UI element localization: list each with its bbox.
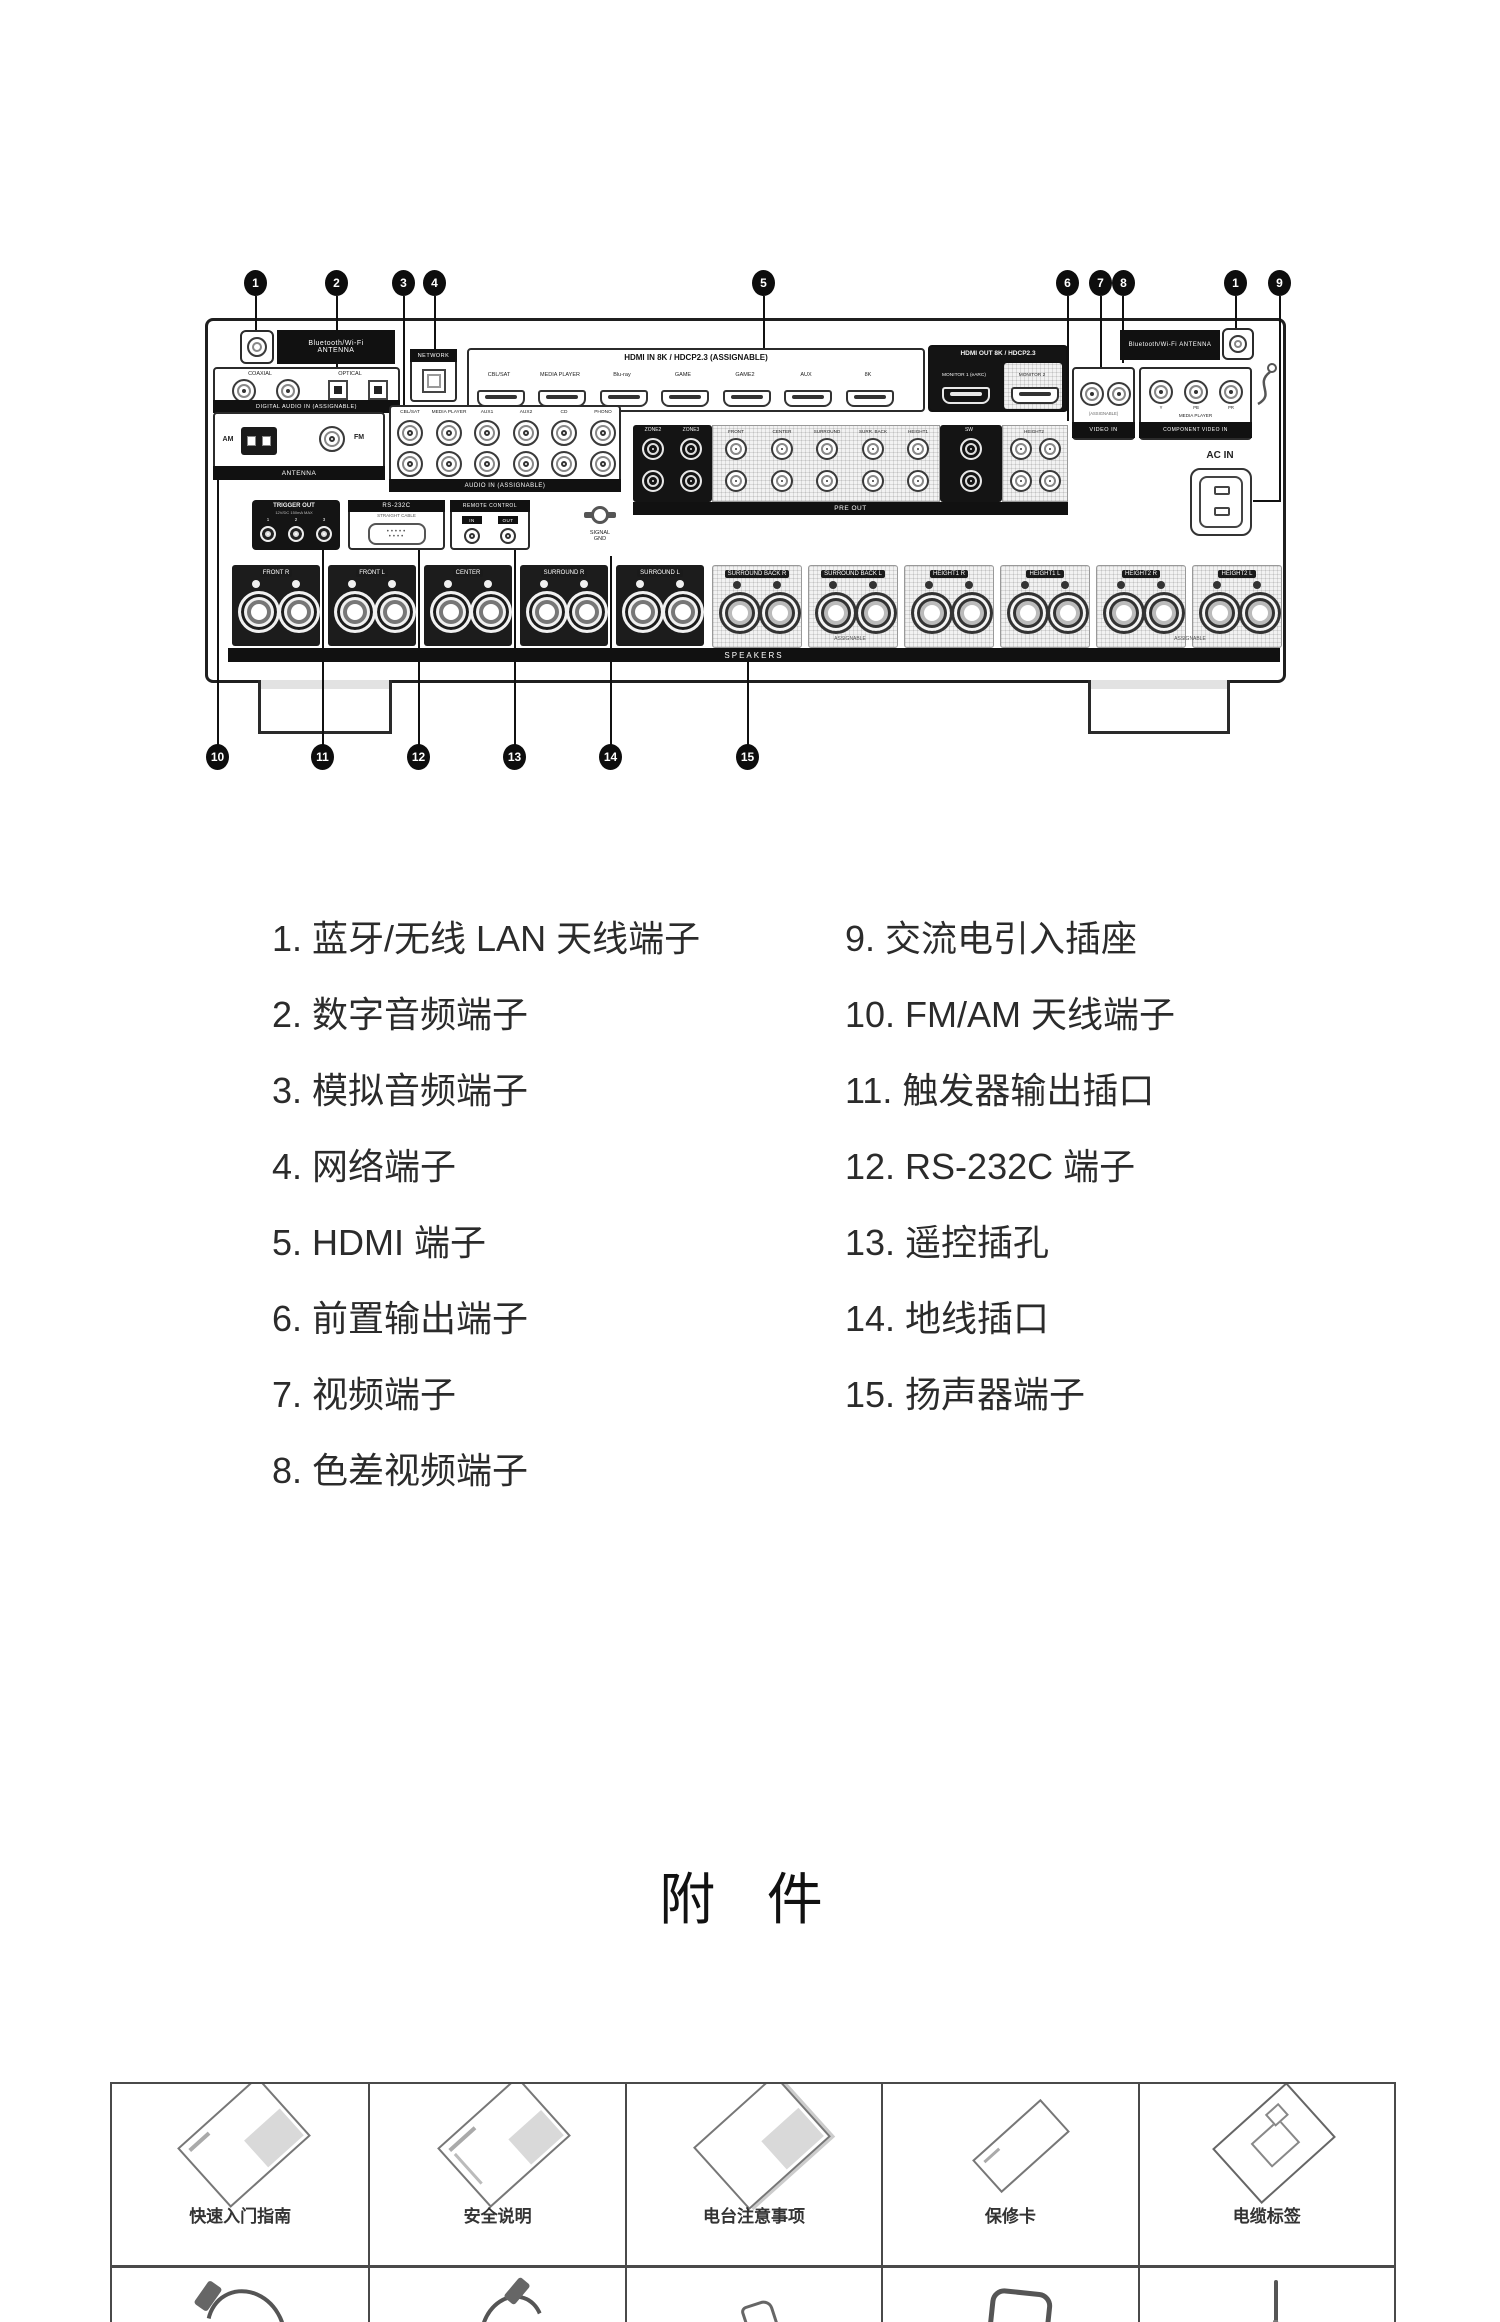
hdmi-port (846, 390, 894, 407)
audio-col-label: MEDIA PLAYER (430, 410, 468, 415)
remote-out-chip: OUT (498, 516, 518, 524)
binding-post (662, 591, 704, 633)
hdmi-port (661, 390, 709, 407)
document-icon (437, 2084, 571, 2208)
audio-strip: AUDIO IN (ASSIGNABLE) (389, 479, 621, 492)
preout-jack (680, 470, 702, 492)
remote-header-text: REMOTE CONTROL (463, 503, 517, 509)
accessory-label: 电缆标签 (1140, 2202, 1394, 2227)
ac-inlet (1190, 468, 1252, 536)
antenna-squiggle-icon (1252, 358, 1282, 408)
accessory-plug (625, 2265, 881, 2322)
hdmi-input-label: MEDIA PLAYER (532, 372, 588, 378)
am-terminal (241, 427, 277, 455)
binding-post (1199, 592, 1241, 634)
component-col-label: PB (1184, 406, 1208, 411)
callout-6: 6 (1056, 270, 1079, 296)
leader-line (403, 296, 405, 405)
preout-jack (1039, 470, 1061, 492)
rca-jack (590, 420, 616, 446)
accessory-loop-antenna (881, 2265, 1137, 2322)
legend-item-13: 13. 遥控插孔 (845, 1214, 1049, 1266)
binding-post (334, 591, 376, 633)
legend-item-5: 5. HDMI 端子 (272, 1214, 486, 1266)
accessories-row-2 (112, 2265, 1394, 2322)
antenna-jack (1229, 335, 1247, 353)
media-player-label: MEDIA PLAYER (1141, 413, 1250, 418)
assignable-label: ASSIGNABLE (760, 637, 940, 643)
leader-line (514, 548, 516, 745)
preout-jack (907, 438, 929, 460)
speaker-channel-label: SURROUND BACK L (821, 570, 885, 578)
component-col-label: Y (1149, 406, 1173, 411)
trigger-header: TRIGGER OUT (252, 503, 336, 510)
callout-5: 5 (752, 270, 775, 296)
bt-antenna-text: ANTENNA (318, 347, 355, 354)
preout-sw-box: SW (940, 425, 1002, 502)
trigger-jack (288, 526, 304, 542)
legend-item-1: 1. 蓝牙/无线 LAN 天线端子 (272, 910, 700, 962)
speakers-strip-text: SPEAKERS (724, 651, 783, 660)
speakers-strip: SPEAKERS (228, 648, 1280, 662)
legend-item-14: 14. 地线插口 (845, 1290, 1049, 1342)
binding-post (622, 591, 664, 633)
audio-col-label: PHONO (584, 410, 622, 415)
preout-jack (1010, 470, 1032, 492)
callout-1b: 1 (1224, 270, 1247, 296)
hdmi-input-label: GAME (655, 372, 711, 378)
remote-header: REMOTE CONTROL (450, 500, 530, 512)
binding-post (470, 591, 512, 633)
binding-post (1239, 592, 1281, 634)
legend-item-9: 9. 交流电引入插座 (845, 910, 1137, 962)
preout-col-label: SURROUND (805, 429, 849, 434)
accessory-label: 保修卡 (883, 2202, 1137, 2227)
panel-foot-left (258, 680, 392, 734)
fm-label: FM (349, 434, 369, 442)
preout-jack (960, 438, 982, 460)
component-jack (1149, 380, 1173, 404)
hdmi-input-label: CBL/SAT (471, 372, 527, 378)
speaker-channel-label: SURROUND BACK R (725, 570, 790, 578)
hdmi-out-box: HDMI OUT 8K / HDCP2.3 MONITOR 1 (eARC) M… (928, 345, 1068, 412)
speaker-cell: SURROUND BACK R (712, 565, 802, 648)
accessory-label: 电台注意事项 (627, 2202, 881, 2227)
legend-item-12: 12. RS-232C 端子 (845, 1138, 1135, 1190)
callout-1: 1 (244, 270, 267, 296)
rca-jack (590, 451, 616, 477)
rca-jack (436, 420, 462, 446)
leader-line (217, 480, 219, 745)
accessory-cable (368, 2265, 624, 2322)
page-canvas: 1 2 3 4 5 6 7 8 1 9 10 11 12 13 14 15 Bl… (0, 0, 1500, 2322)
preout-jack (907, 470, 929, 492)
preout-strip-text: PRE OUT (834, 505, 866, 512)
hdmi-in-header-text: HDMI IN 8K / HDCP2.3 (ASSIGNABLE) (624, 353, 768, 362)
height2-label: HEIGHT2 (1003, 429, 1065, 434)
preout-zones-box: ZONE2 ZONE3 (633, 425, 712, 502)
component-col-label: PR (1219, 406, 1243, 411)
speaker-cell: HEIGHT2 R (1096, 565, 1186, 648)
hdmi-port (723, 390, 771, 407)
network-header-text: NETWORK (418, 353, 450, 359)
binding-post (815, 592, 857, 634)
audio-col-label: CD (545, 410, 583, 415)
signal-gnd-label: SIGNAL GND (580, 530, 620, 542)
binding-post (430, 591, 472, 633)
trigger-jack-label: 2 (288, 518, 304, 523)
preout-jack (642, 470, 664, 492)
preout-main-box: FRONT CENTER SURROUND SURR. BACK HEIGHT1 (712, 425, 940, 502)
callout-10: 10 (206, 744, 229, 770)
preout-jack (725, 438, 747, 460)
trigger-jack-label: 3 (316, 518, 332, 523)
speaker-cell: HEIGHT1 R (904, 565, 994, 648)
preout-jack (960, 470, 982, 492)
preout-jack (862, 438, 884, 460)
component-jack (1184, 380, 1208, 404)
speaker-channel-label: CENTER (453, 569, 484, 577)
speaker-channel-label: HEIGHT1 R (930, 570, 968, 578)
preout-height2-box: HEIGHT2 (1002, 425, 1068, 502)
legend-item-11: 11. 触发器输出插口 (845, 1062, 1154, 1114)
trigger-sub: 12V/DC 150mA MAX (252, 511, 336, 515)
hdmi-out-header: HDMI OUT 8K / HDCP2.3 (930, 350, 1066, 357)
audio-strip-text: AUDIO IN (ASSIGNABLE) (465, 483, 546, 489)
component-jack (1219, 380, 1243, 404)
hdmi-out-port-monitor2 (1011, 387, 1059, 404)
callout-15: 15 (736, 744, 759, 770)
bt-antenna-connector-left (240, 330, 274, 364)
preout-col-label: SURR. BACK (851, 429, 895, 434)
leader-line (1235, 296, 1237, 331)
leader-line (763, 296, 765, 349)
remote-control-box: REMOTE CONTROL IN OUT (450, 500, 530, 550)
bt-antenna-text: Bluetooth/Wi-Fi (1129, 342, 1178, 348)
rca-jack (551, 451, 577, 477)
callout-11: 11 (311, 744, 334, 770)
component-strip-text: COMPONENT VIDEO IN (1163, 427, 1228, 433)
leader-line (434, 296, 436, 350)
binding-post (566, 591, 608, 633)
document-icon (693, 2084, 831, 2210)
speaker-cell: FRONT L (328, 565, 416, 646)
leader-line (747, 652, 749, 745)
preout-jack (725, 470, 747, 492)
accessory-label: 安全说明 (370, 2202, 624, 2227)
speaker-channel-label: HEIGHT2 L (1218, 570, 1255, 578)
speaker-cell: SURROUND L (616, 565, 704, 646)
hdmi-out-header-text: HDMI OUT 8K / HDCP2.3 (960, 350, 1035, 357)
bt-antenna-text: ANTENNA (1179, 342, 1211, 348)
callout-7: 7 (1089, 270, 1112, 296)
binding-post (1143, 592, 1185, 634)
preout-jack (642, 438, 664, 460)
callout-13: 13 (503, 744, 526, 770)
db9-connector: ••••• •••• (368, 523, 426, 545)
speaker-cell: FRONT R (232, 565, 320, 646)
accessory-cable-labels: 电缆标签 (1138, 2084, 1394, 2265)
callout-2: 2 (325, 270, 348, 296)
bt-antenna-label-right: Bluetooth/Wi-Fi ANTENNA (1120, 330, 1220, 360)
optical-jack (368, 380, 388, 400)
video-assignable: (ASSIGNABLE) (1074, 412, 1133, 417)
hdmi-input-label: GAME2 (717, 372, 773, 378)
hdmi-input-label: AUX (778, 372, 834, 378)
rca-jack (513, 451, 539, 477)
rca-jack (436, 451, 462, 477)
bt-antenna-label-left: Bluetooth/Wi-Fi ANTENNA (277, 330, 395, 364)
remote-in-chip: IN (462, 516, 482, 524)
antenna-strip: ANTENNA (213, 466, 385, 480)
rca-jack (513, 420, 539, 446)
audio-col-label: AUX2 (507, 410, 545, 415)
callout-3: 3 (392, 270, 415, 296)
legend-item-6: 6. 前置输出端子 (272, 1290, 528, 1342)
rs232c-sub: STRAIGHT CABLE (350, 514, 443, 519)
video-box: (ASSIGNABLE) VIDEO IN (1072, 367, 1135, 440)
signal-gnd-text: GND (594, 536, 606, 542)
leader-line (418, 548, 420, 745)
leader-line (1253, 500, 1281, 502)
accessories-table: 快速入门指南 安全说明 电台注意事项 保修卡 (110, 2082, 1396, 2322)
audio-col-label: AUX1 (468, 410, 506, 415)
binding-post (855, 592, 897, 634)
preout-jack (862, 470, 884, 492)
antenna-jack (247, 337, 267, 357)
binding-post (759, 592, 801, 634)
coaxial-label: COAXIAL (225, 371, 295, 377)
callout-9: 9 (1268, 270, 1291, 296)
binding-post (1047, 592, 1089, 634)
speaker-cell: CENTER (424, 565, 512, 646)
monitor1-label: MONITOR 1 (eARC) (936, 373, 992, 378)
accessories-row-1: 快速入门指南 安全说明 电台注意事项 保修卡 (112, 2084, 1394, 2265)
leader-line (1100, 296, 1102, 368)
preout-jack (680, 438, 702, 460)
callout-8: 8 (1112, 270, 1135, 296)
preout-col-label: HEIGHT1 (896, 429, 940, 434)
speaker-cell: SURROUND R (520, 565, 608, 646)
legend-item-2: 2. 数字音频端子 (272, 986, 528, 1038)
remote-in-text: IN (469, 518, 475, 523)
accessory-label: 快速入门指南 (112, 2202, 368, 2227)
callout-12: 12 (407, 744, 430, 770)
panel-foot-right (1088, 680, 1230, 734)
accessory-warranty: 保修卡 (881, 2084, 1137, 2265)
trigger-jack-label: 1 (260, 518, 276, 523)
trigger-jack (260, 526, 276, 542)
signal-gnd-terminal (584, 505, 616, 525)
hdmi-out-zone: MONITOR 2 (1004, 363, 1062, 409)
binding-post (1103, 592, 1145, 634)
speaker-channel-label: FRONT R (260, 569, 293, 577)
ethernet-port (422, 369, 446, 393)
hdmi-port (784, 390, 832, 407)
component-video-box: Y PB PR MEDIA PLAYER COMPONENT VIDEO IN (1139, 367, 1252, 440)
hdmi-input-label: 8K (840, 372, 896, 378)
legend-item-3: 3. 模拟音频端子 (272, 1062, 528, 1114)
callout-4: 4 (423, 270, 446, 296)
audio-col-label: CBL/SAT (391, 410, 429, 415)
video-strip-text: VIDEO IN (1089, 427, 1117, 433)
rca-jack (397, 451, 423, 477)
network-box: NETWORK (410, 349, 457, 402)
binding-post (278, 591, 320, 633)
preout-jack (771, 438, 793, 460)
rs232c-box: RS-232C STRAIGHT CABLE ••••• •••• (348, 500, 445, 550)
binding-post (719, 592, 761, 634)
label-sheet-icon (1212, 2084, 1336, 2204)
antenna-strip-text: ANTENNA (282, 470, 317, 477)
rca-jack (397, 420, 423, 446)
preout-col-label: FRONT (714, 429, 758, 434)
binding-post (911, 592, 953, 634)
remote-out-text: OUT (503, 518, 514, 523)
video-jack (1107, 382, 1131, 406)
rs232c-header-text: RS-232C (382, 503, 410, 509)
component-strip: COMPONENT VIDEO IN (1139, 422, 1252, 438)
binding-post (374, 591, 416, 633)
rs232c-header: RS-232C (348, 500, 445, 512)
preout-jack (816, 438, 838, 460)
trigger-jack (316, 526, 332, 542)
legend-item-4: 4. 网络端子 (272, 1138, 456, 1190)
digital-audio-strip-text: DIGITAL AUDIO IN (ASSIGNABLE) (256, 404, 357, 410)
optical-label: OPTICAL (320, 371, 380, 377)
accessory-power-cord (112, 2265, 368, 2322)
ac-in-label: AC IN (1185, 450, 1255, 461)
preout-jack (1039, 438, 1061, 460)
speaker-channel-label: SURROUND L (637, 569, 683, 577)
hdmi-in-box: HDMI IN 8K / HDCP2.3 (ASSIGNABLE) CBL/SA… (467, 348, 925, 412)
bt-antenna-connector-right (1222, 328, 1254, 360)
optical-jack (328, 380, 348, 400)
accessory-safety: 安全说明 (368, 2084, 624, 2265)
legend-item-8: 8. 色差视频端子 (272, 1442, 528, 1494)
accessories-title: 附 件 (0, 1855, 1500, 1936)
speaker-channel-label: FRONT L (356, 569, 388, 577)
card-icon (972, 2099, 1070, 2193)
sw-label: SW (940, 428, 998, 434)
speaker-channel-label: HEIGHT1 L (1026, 570, 1063, 578)
trigger-out-box: TRIGGER OUT 12V/DC 150mA MAX 1 2 3 (252, 500, 340, 550)
accessory-rod-antenna (1138, 2265, 1394, 2322)
am-label: AM (219, 436, 237, 444)
hdmi-input-label: Blu-ray (594, 372, 650, 378)
legend-item-10: 10. FM/AM 天线端子 (845, 986, 1175, 1038)
zone2-label: ZONE2 (635, 428, 671, 434)
speaker-cell: HEIGHT1 L (1000, 565, 1090, 648)
remote-out-jack (500, 528, 516, 544)
rca-jack (474, 420, 500, 446)
binding-post (526, 591, 568, 633)
preout-col-label: CENTER (760, 429, 804, 434)
video-jack (1080, 382, 1104, 406)
binding-post (238, 591, 280, 633)
accessory-quick-start: 快速入门指南 (112, 2084, 368, 2265)
document-icon (177, 2084, 311, 2208)
callout-14: 14 (599, 744, 622, 770)
rca-jack (474, 451, 500, 477)
monitor2-label: MONITOR 2 (1005, 373, 1059, 378)
rca-jack (551, 420, 577, 446)
fm-jack (319, 426, 345, 452)
network-header: NETWORK (410, 349, 457, 362)
accessory-radio-notes: 电台注意事项 (625, 2084, 881, 2265)
bt-antenna-text: Bluetooth/Wi-Fi (308, 340, 363, 347)
preout-jack (816, 470, 838, 492)
remote-in-jack (464, 528, 480, 544)
leader-line (322, 548, 324, 745)
legend-item-15: 15. 扬声器端子 (845, 1366, 1085, 1418)
preout-jack (1010, 438, 1032, 460)
speaker-channel-label: SURROUND R (541, 569, 588, 577)
binding-post (1007, 592, 1049, 634)
ac-in-text: AC IN (1206, 450, 1233, 461)
hdmi-out-port-monitor1 (942, 387, 990, 404)
speaker-channel-label: HEIGHT2 R (1122, 570, 1160, 578)
assignable-label: ASSIGNABLE (1105, 637, 1275, 643)
legend-item-7: 7. 视频端子 (272, 1366, 456, 1418)
zone3-label: ZONE3 (673, 428, 709, 434)
hdmi-in-header: HDMI IN 8K / HDCP2.3 (ASSIGNABLE) (469, 353, 923, 362)
preout-strip: PRE OUT (633, 502, 1068, 515)
binding-post (951, 592, 993, 634)
video-strip: VIDEO IN (1072, 422, 1135, 438)
preout-jack (771, 470, 793, 492)
